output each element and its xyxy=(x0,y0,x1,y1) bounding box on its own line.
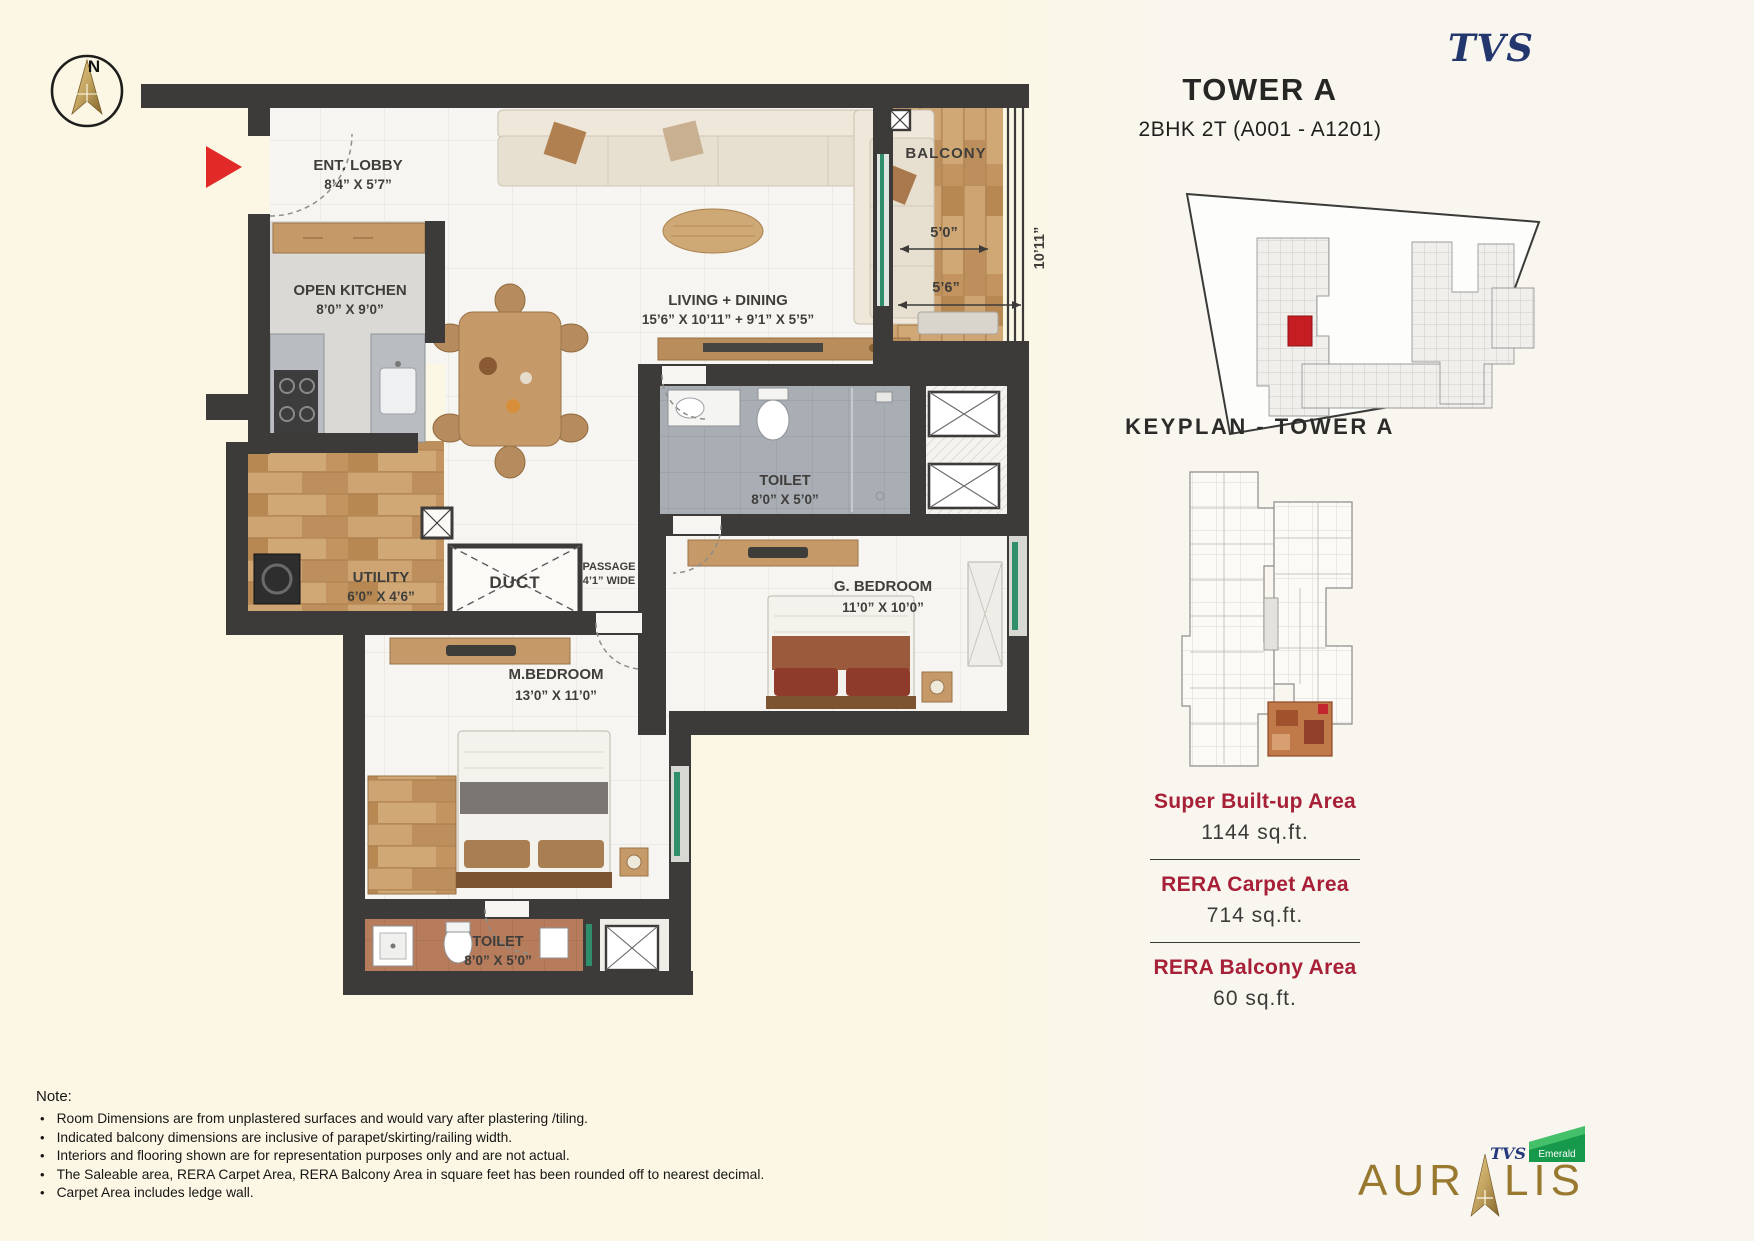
tvs-logo: TVS xyxy=(1448,26,1534,70)
room-label-m-bedroom: M.BEDROOM xyxy=(509,666,604,683)
room-label-balcony: BALCONY xyxy=(905,145,986,162)
room-dims-utility: 6’0” X 4’6” xyxy=(347,589,415,604)
area-value-rera-carpet: 714 sq.ft. xyxy=(1080,904,1430,928)
area-label-super-builtup: Super Built-up Area xyxy=(1080,790,1430,814)
keyplan-title: KEYPLAN - TOWER A xyxy=(1040,414,1480,440)
room-dims-m-bedroom: 13’0” X 11’0” xyxy=(515,688,597,703)
page-title: TOWER A xyxy=(1040,72,1480,108)
room-dims-toilet-1: 8’0” X 5’0” xyxy=(751,492,819,507)
room-label-toilet-1: TOILET xyxy=(759,473,810,489)
area-statements: Super Built-up Area 1144 sq.ft. RERA Car… xyxy=(1080,790,1430,1011)
auralis-wordmark: AUR LIS xyxy=(1358,1154,1585,1208)
washing-machine xyxy=(254,554,300,604)
note-item: Indicated balcony dimensions are inclusi… xyxy=(36,1130,816,1145)
balcony-bench xyxy=(918,312,998,334)
note-list: Room Dimensions are from unplastered sur… xyxy=(36,1111,816,1200)
divider xyxy=(1150,859,1360,860)
divider xyxy=(1150,942,1360,943)
room-label-living-dining: LIVING + DINING xyxy=(668,292,788,309)
room-label-passage: PASSAGE xyxy=(583,561,636,573)
room-label-toilet-2: TOILET xyxy=(472,934,523,950)
room-label-duct: DUCT xyxy=(489,573,540,592)
note-item: Carpet Area includes ledge wall. xyxy=(36,1185,816,1200)
room-dims-living-dining: 15’6” X 10’11” + 9’1” X 5’5” xyxy=(642,312,814,327)
area-value-rera-balcony: 60 sq.ft. xyxy=(1080,987,1430,1011)
balcony-railing xyxy=(1008,108,1023,352)
note-title: Note: xyxy=(36,1088,816,1105)
brochure-page: N xyxy=(0,0,1754,1241)
balcony-dim-3: 10’11” xyxy=(1032,227,1048,270)
area-label-rera-balcony: RERA Balcony Area xyxy=(1080,956,1430,980)
note-item: The Saleable area, RERA Carpet Area, RER… xyxy=(36,1167,816,1182)
room-dims-toilet-2: 8’0” X 5’0” xyxy=(464,953,532,968)
area-label-rera-carpet: RERA Carpet Area xyxy=(1080,873,1430,897)
coffee-table xyxy=(663,209,763,253)
balcony-dim-2: 5’6” xyxy=(932,280,959,296)
room-label-ent-lobby: ENT. LOBBY xyxy=(313,157,402,174)
note-item: Interiors and flooring shown are for rep… xyxy=(36,1148,816,1163)
compass-north-label: N xyxy=(88,57,100,76)
area-value-super-builtup: 1144 sq.ft. xyxy=(1080,821,1430,845)
note-item: Room Dimensions are from unplastered sur… xyxy=(36,1111,816,1126)
room-label-open-kitchen: OPEN KITCHEN xyxy=(293,282,406,299)
balcony-dim-1: 5’0” xyxy=(930,225,957,241)
auralis-star-icon xyxy=(1467,1154,1503,1222)
highlighted-unit-marker xyxy=(1288,316,1312,346)
auralis-logo: TVS Emerald AUR LIS xyxy=(1360,1118,1585,1228)
auralis-text-suffix: LIS xyxy=(1504,1159,1585,1203)
title-block: TOWER A 2BHK 2T (A001 - A1201) xyxy=(1040,72,1480,142)
entrance-arrow-icon xyxy=(206,146,242,188)
tv-console xyxy=(658,338,910,360)
compass-icon: N xyxy=(42,38,134,136)
floor-plan: ENT. LOBBY 8’4” X 5’7” OPEN KITCHEN 8’0”… xyxy=(128,76,1060,996)
auralis-text-prefix: AUR xyxy=(1358,1159,1466,1203)
room-dims-passage: 4’1” WIDE xyxy=(583,575,636,587)
room-dims-ent-lobby: 8’4” X 5’7” xyxy=(324,177,392,192)
note-block: Note: Room Dimensions are from unplaster… xyxy=(36,1088,816,1200)
room-label-utility: UTILITY xyxy=(353,569,410,586)
room-label-g-bedroom: G. BEDROOM xyxy=(834,578,932,595)
keyplan-image xyxy=(1168,458,1373,788)
site-plan xyxy=(1052,168,1552,448)
keyplan-highlight-unit xyxy=(1268,702,1332,756)
page-subtitle: 2BHK 2T (A001 - A1201) xyxy=(1040,118,1480,142)
room-dims-g-bedroom: 11’0” X 10’0” xyxy=(842,600,924,615)
room-dims-open-kitchen: 8’0” X 9’0” xyxy=(316,302,384,317)
